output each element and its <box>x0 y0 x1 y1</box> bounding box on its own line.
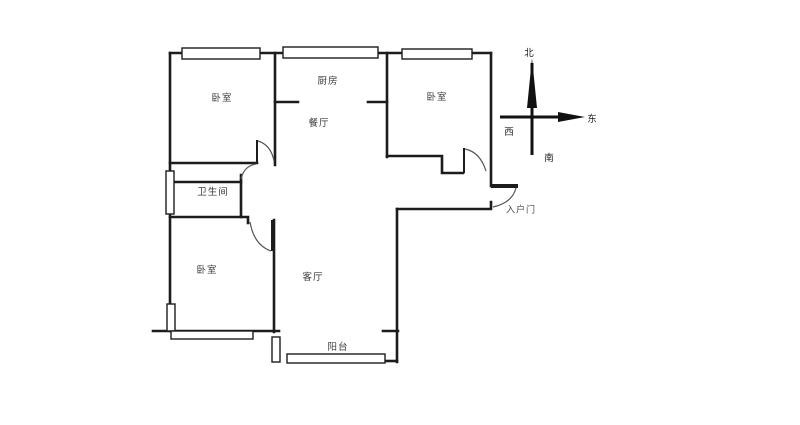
compass-north-label: 北 <box>524 45 534 59</box>
wall-entry-bottom <box>397 202 491 209</box>
compass-east-label: 东 <box>587 111 597 125</box>
wall-bedroom3-top <box>170 217 248 223</box>
room-label-living: 客厅 <box>302 269 323 283</box>
room-label-dining: 餐厅 <box>308 115 329 129</box>
window-balcony-bottom <box>287 354 385 363</box>
window-kitchen-top <box>283 47 378 58</box>
window-bathroom-left <box>166 171 174 214</box>
bedroom3-door-arc <box>250 222 271 251</box>
entrance-door-label: 入户门 <box>506 203 536 216</box>
wall-bedroom2-bottom <box>387 156 463 173</box>
floorplan-canvas: 卧室 厨房 餐厅 卧室 卫生间 卧室 客厅 阳台 入户门 北 东 西 南 <box>0 0 800 425</box>
room-label-balcony: 阳台 <box>327 339 348 353</box>
bedroom2-door-arc <box>465 149 486 171</box>
compass-west-label: 西 <box>504 124 514 138</box>
compass-icon <box>500 58 585 155</box>
window-balcony-left <box>272 337 280 362</box>
room-label-bedroom-top-right: 卧室 <box>426 89 447 103</box>
bedroom1-door-arc <box>258 141 274 161</box>
window-bedroom3-bottom <box>171 331 253 339</box>
room-label-kitchen: 厨房 <box>317 73 338 87</box>
floorplan-drawing <box>0 0 800 425</box>
door-arcs <box>241 141 516 251</box>
compass-north-arrow <box>527 58 537 108</box>
window-bedroom1-top <box>182 48 260 59</box>
compass-south-label: 南 <box>544 150 554 164</box>
room-label-bathroom: 卫生间 <box>197 184 229 198</box>
wall-bathroom-top <box>170 175 241 182</box>
window-bedroom2-top <box>402 49 472 59</box>
compass-east-arrow <box>558 112 585 122</box>
bathroom-door-arc <box>241 164 256 179</box>
room-label-bedroom-top-left: 卧室 <box>211 90 232 104</box>
window-bedroom3-left <box>167 304 175 331</box>
room-label-bedroom-bottom-left: 卧室 <box>196 262 217 276</box>
